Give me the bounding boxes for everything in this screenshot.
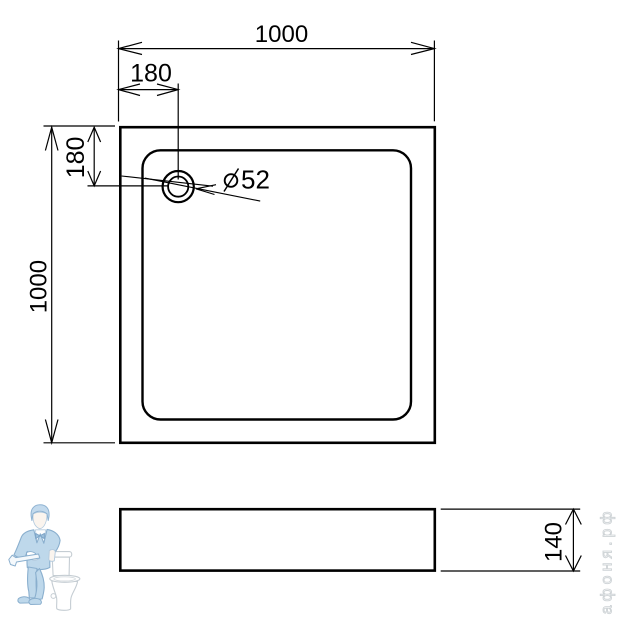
svg-text:1000: 1000 [25,260,52,313]
svg-text:1000: 1000 [255,21,308,48]
svg-text:52: 52 [241,165,270,195]
svg-text:140: 140 [541,522,568,562]
svg-text:180: 180 [62,137,90,179]
svg-text:180: 180 [130,59,172,87]
svg-text:афоня.рф: афоня.рф [599,507,616,614]
